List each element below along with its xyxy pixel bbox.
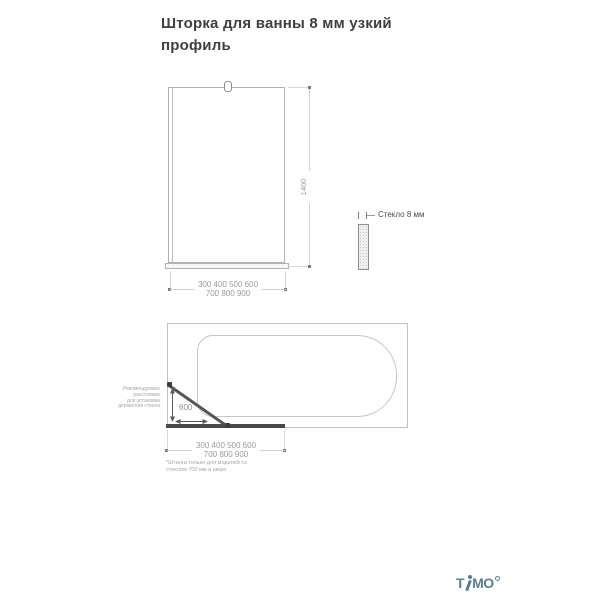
- double-arrow-horizontal-icon: [175, 417, 208, 426]
- page-title-line2: профиль: [161, 35, 481, 57]
- timo-logo: T MO: [456, 569, 500, 591]
- footnote-line2: стеклом 700 мм и шире: [166, 467, 247, 474]
- glass-panel-outline: [168, 87, 285, 263]
- height-dimension-label: 1400: [288, 171, 318, 203]
- footnote-line1: *Штанга только для моделей со: [166, 460, 247, 467]
- width-options-row1: 300 400 500 600: [194, 280, 262, 289]
- dimension-tick: [308, 86, 311, 89]
- bottom-support-strip: [165, 263, 289, 269]
- page-title-line1: Шторка для ванны 8 мм узкий: [161, 13, 481, 35]
- top-glass-clip: [224, 81, 232, 92]
- narrow-wall-profile: [172, 88, 173, 262]
- width-dimension-label: 300 400 500 600 700 800 900: [194, 280, 262, 298]
- width-options-row1: 300 400 500 600: [192, 441, 260, 450]
- footnote: *Штанга только для моделей со стеклом 70…: [166, 460, 247, 473]
- glass-cross-section: [358, 224, 369, 270]
- bar-glass-holder: [225, 423, 230, 428]
- width-dimension-label: 300 400 500 600 700 800 900: [192, 441, 260, 459]
- holder-distance-label: 600: [179, 403, 192, 412]
- holder-annotation: Рекомендуемое расстояние для установки д…: [96, 387, 160, 410]
- bar-wall-mount: [167, 382, 172, 387]
- dimension-tick: [308, 265, 311, 268]
- bathtub-basin-outline: [197, 335, 397, 417]
- thickness-tick: [358, 212, 359, 219]
- logo-letters-mo: MO: [472, 575, 494, 591]
- width-options-row2: 700 800 900: [194, 289, 262, 298]
- glass-thickness-label: Стекло 8 мм: [378, 210, 425, 219]
- width-options-row2: 700 800 900: [192, 450, 260, 459]
- extension-line: [288, 87, 310, 88]
- page-title: Шторка для ванны 8 мм узкий профиль: [161, 13, 481, 57]
- logo-letter-t: T: [456, 575, 464, 591]
- product-diagram-page: Шторка для ванны 8 мм узкий профиль 1400…: [0, 0, 600, 600]
- registered-mark-icon: [495, 576, 500, 581]
- logo-stylized-i-icon: [465, 579, 472, 591]
- annotation-line: держателя стекла: [96, 404, 160, 410]
- leader-line: [367, 215, 375, 216]
